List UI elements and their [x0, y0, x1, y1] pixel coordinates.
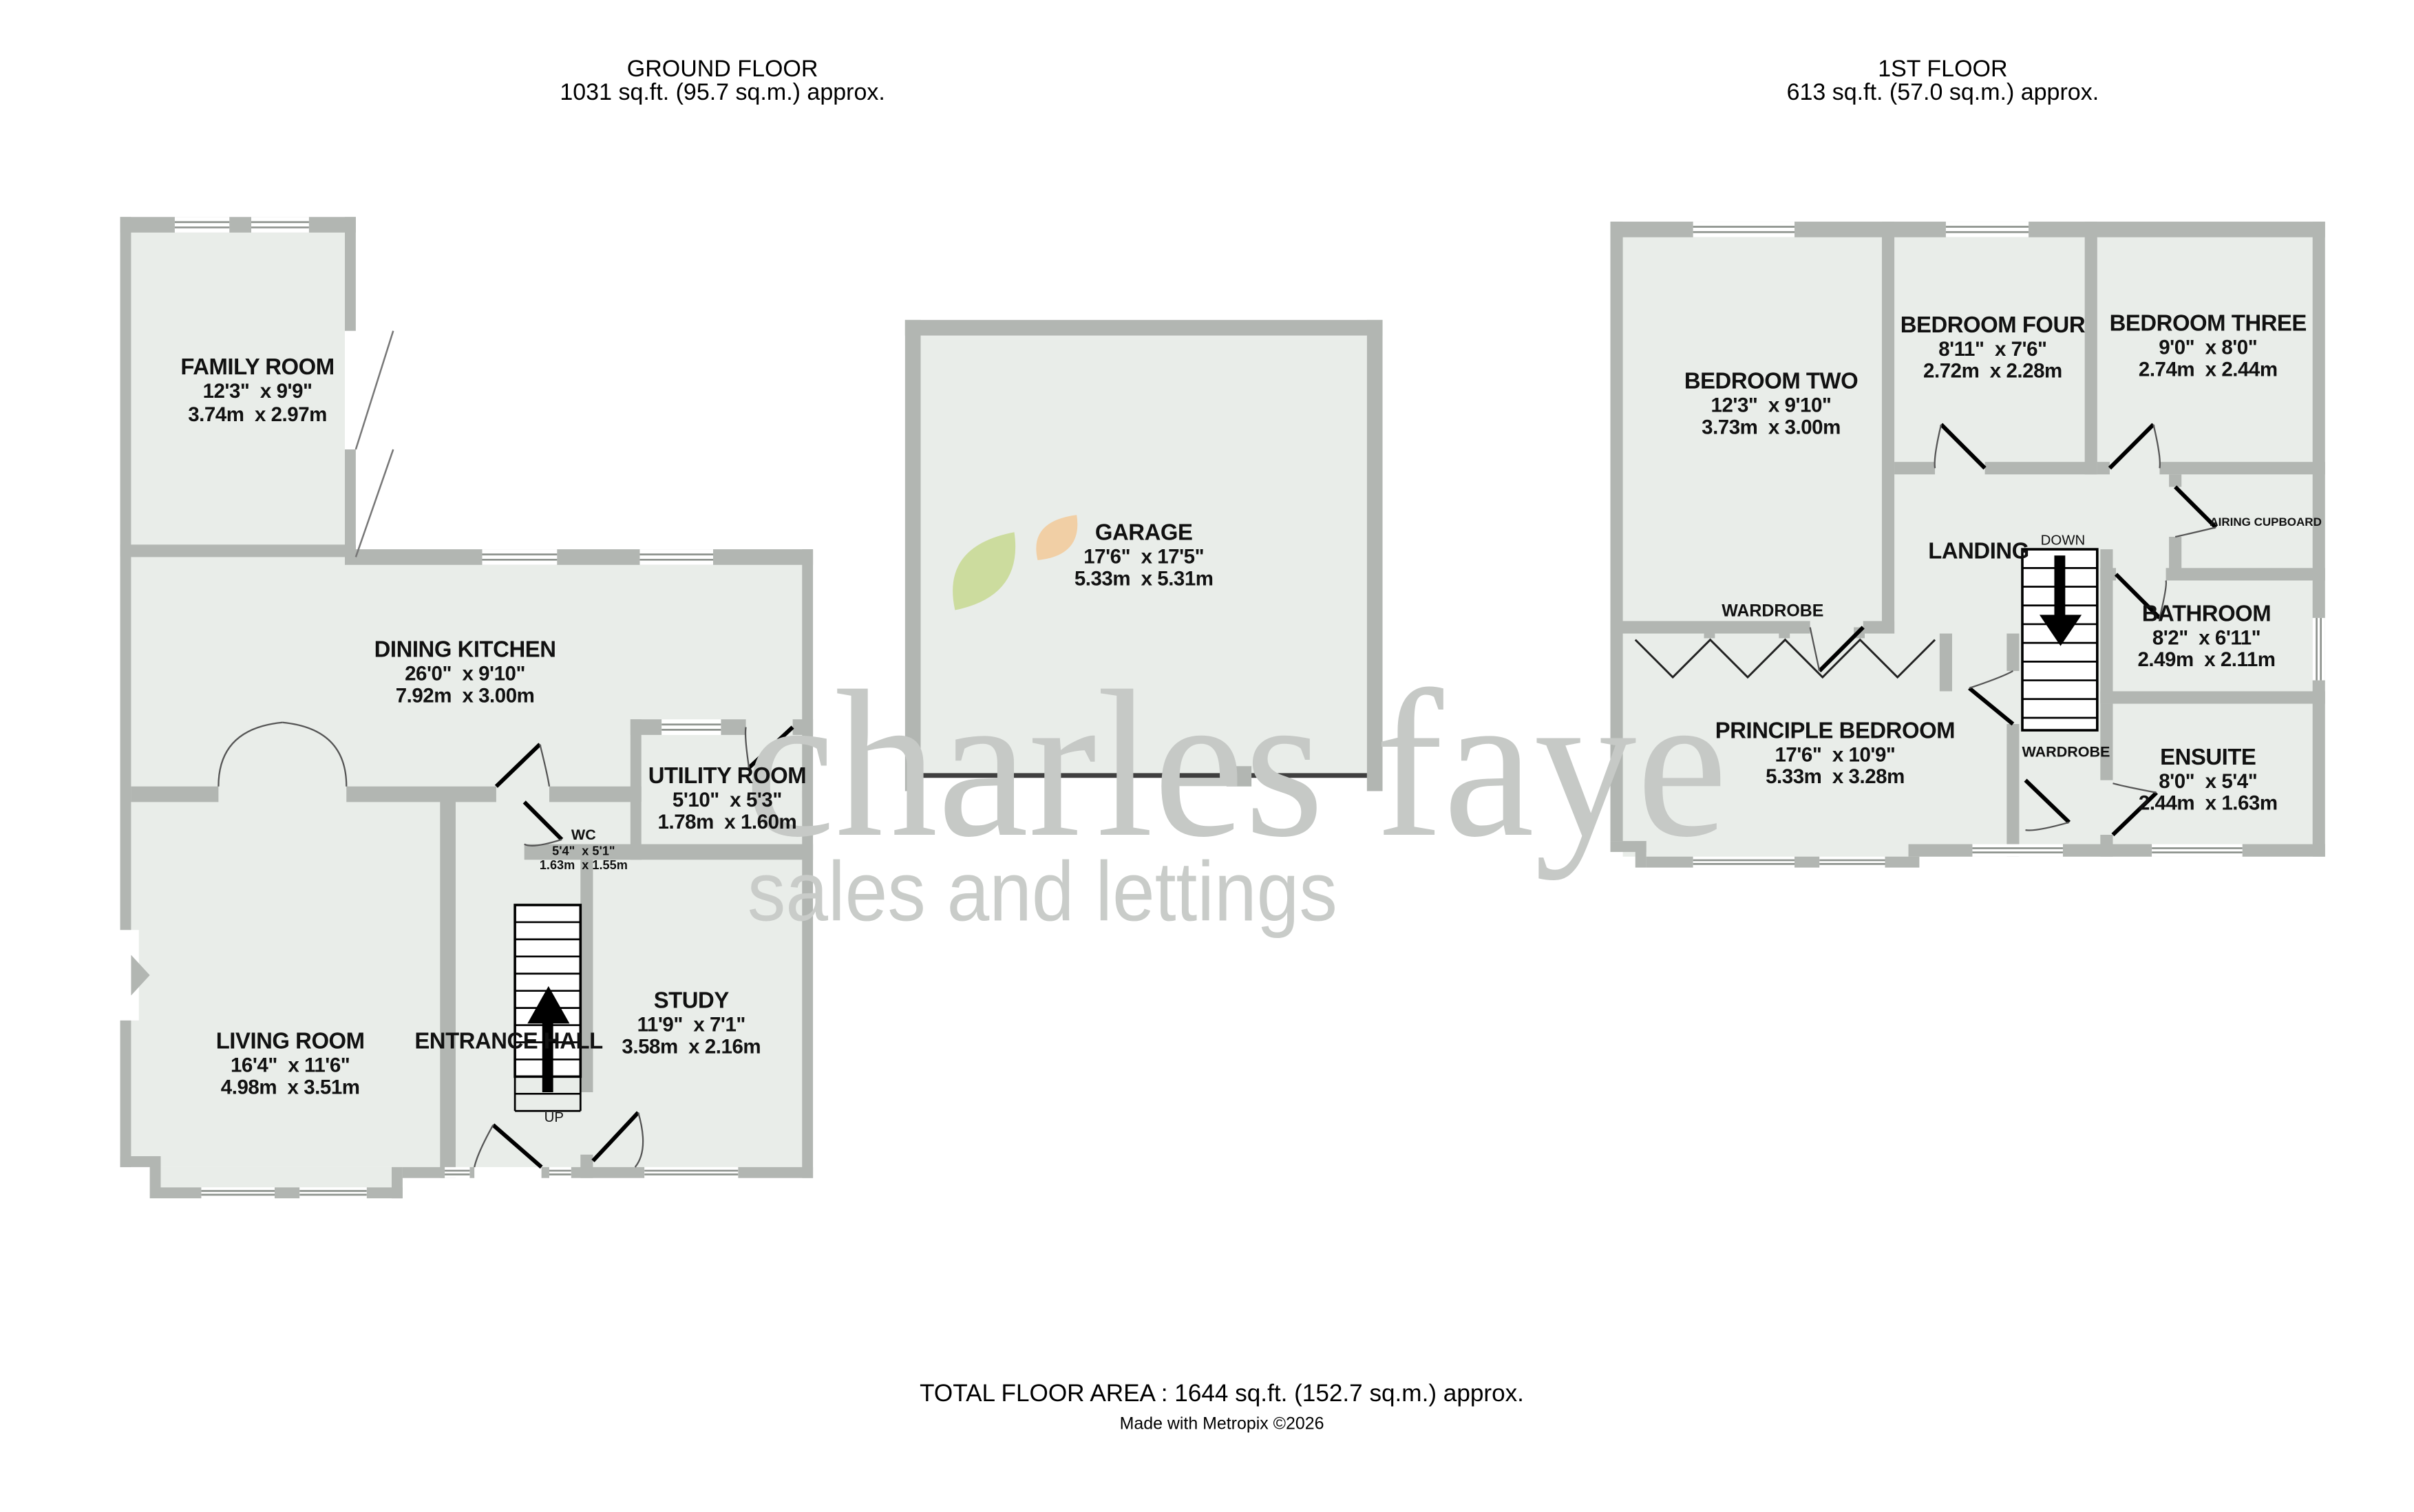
- room-dim-imperial: 17'6" x 17'5": [1083, 546, 1204, 568]
- room-dim-imperial: 5'4" x 5'1": [552, 844, 615, 858]
- watermark-tagline: sales and lettings: [748, 844, 1337, 939]
- room-label-garage: GARAGE: [1095, 520, 1193, 545]
- window: [2313, 618, 2325, 681]
- room-dim-metric: 1.63m x 1.55m: [540, 858, 628, 872]
- room-dim-metric: 3.58m x 2.16m: [622, 1035, 761, 1058]
- room-label-living-room: LIVING ROOM: [216, 1028, 365, 1054]
- room-label-bedroom-four: BEDROOM FOUR: [1901, 312, 2086, 337]
- room-dim-metric: 2.74m x 2.44m: [2139, 358, 2278, 381]
- ground-floor-area: 1031 sq.ft. (95.7 sq.m.) approx.: [560, 79, 885, 105]
- window: [445, 1167, 469, 1178]
- room-dim-metric: 1.78m x 1.60m: [658, 811, 797, 833]
- opening: [356, 331, 393, 557]
- room-dim-imperial: 11'9" x 7'1": [637, 1014, 745, 1036]
- label-wardrobe: WARDROBE: [1722, 601, 1823, 621]
- room-label-bedroom-two: BEDROOM TWO: [1684, 368, 1858, 394]
- label-airing-cupboard: AIRING CUPBOARD: [2210, 515, 2321, 529]
- room-dim-imperial: 8'2" x 6'11": [2152, 626, 2261, 649]
- room-label-dining-kitchen: DINING KITCHEN: [374, 637, 556, 662]
- room-label-entrance-hall: ENTRANCE HALL: [414, 1028, 603, 1054]
- window: [661, 719, 721, 735]
- room-dim-metric: 5.33m x 5.31m: [1074, 567, 1214, 590]
- room-dim-imperial: 26'0" x 9'10": [405, 663, 525, 685]
- room-dim-metric: 2.44m x 1.63m: [2139, 792, 2278, 815]
- room-label-bathroom: BATHROOM: [2142, 600, 2271, 626]
- floorplan-canvas: charles faye sales and lettings FAMILY R…: [0, 0, 2414, 1512]
- room-label-family-room: FAMILY ROOM: [180, 354, 334, 379]
- plan-footer: TOTAL FLOOR AREA : 1644 sq.ft. (152.7 sq…: [920, 1380, 1524, 1434]
- metropix-credit: Made with Metropix ©2026: [1120, 1414, 1324, 1434]
- room-dim-metric: 2.72m x 2.28m: [1923, 360, 2062, 383]
- window: [2152, 844, 2242, 857]
- label-wardrobe-small: WARDROBE: [2022, 744, 2110, 760]
- total-floor-area: TOTAL FLOOR AREA : 1644 sq.ft. (152.7 sq…: [920, 1380, 1524, 1407]
- room-dim-imperial: 12'3" x 9'10": [1711, 394, 1832, 417]
- window: [175, 217, 229, 233]
- first-floor-title: 1ST FLOOR: [1878, 56, 2007, 82]
- room-dim-metric: 5.33m x 3.28m: [1766, 765, 1905, 788]
- first-floor-area: 613 sq.ft. (57.0 sq.m.) approx.: [1787, 79, 2099, 105]
- window: [549, 1167, 571, 1178]
- room-dim-imperial: 5'10" x 5'3": [673, 789, 782, 811]
- room-dim-imperial: 8'11" x 7'6": [1938, 338, 2046, 361]
- room-label-wc: WC: [571, 827, 596, 843]
- room-label-principle-bedroom: PRINCIPLE BEDROOM: [1715, 717, 1955, 743]
- window: [299, 1187, 366, 1198]
- room-dim-metric: 2.49m x 2.11m: [2137, 648, 2275, 671]
- room-label-landing: LANDING: [1928, 538, 2029, 564]
- window: [1946, 222, 2029, 237]
- room-dim-metric: 3.73m x 3.00m: [1702, 416, 1841, 438]
- floorplan-page: charles faye sales and lettings FAMILY R…: [0, 0, 2414, 1512]
- room-dim-imperial: 17'6" x 10'9": [1775, 743, 1896, 766]
- window: [644, 1167, 738, 1178]
- room-dim-metric: 7.92m x 3.00m: [396, 684, 535, 707]
- room-label-study: STUDY: [654, 988, 730, 1013]
- room-dim-metric: 3.74m x 2.97m: [188, 403, 327, 426]
- window: [639, 549, 713, 565]
- stairs-down-label: DOWN: [2041, 533, 2086, 548]
- plan-headers: GROUND FLOOR 1031 sq.ft. (95.7 sq.m.) ap…: [560, 56, 2099, 105]
- room-dim-imperial: 8'0" x 5'4": [2159, 770, 2257, 793]
- room-label-bedroom-three: BEDROOM THREE: [2110, 310, 2307, 336]
- window: [1693, 222, 1794, 237]
- room-label-utility-room: UTILITY ROOM: [648, 763, 806, 788]
- room-dim-imperial: 16'4" x 11'6": [231, 1054, 350, 1077]
- window: [201, 1187, 275, 1198]
- first-floor-stairs: [2022, 549, 2097, 730]
- room-dim-imperial: 9'0" x 8'0": [2159, 337, 2257, 359]
- ground-floor-title: GROUND FLOOR: [627, 56, 818, 82]
- window: [1819, 857, 1885, 868]
- room-label-ensuite: ENSUITE: [2160, 744, 2256, 769]
- room-dim-metric: 4.98m x 3.51m: [221, 1076, 360, 1098]
- window: [1972, 844, 2062, 857]
- room-dim-imperial: 12'3" x 9'9": [203, 380, 313, 403]
- stairs-up-label: UP: [544, 1110, 564, 1125]
- window: [251, 217, 309, 233]
- window: [482, 549, 557, 565]
